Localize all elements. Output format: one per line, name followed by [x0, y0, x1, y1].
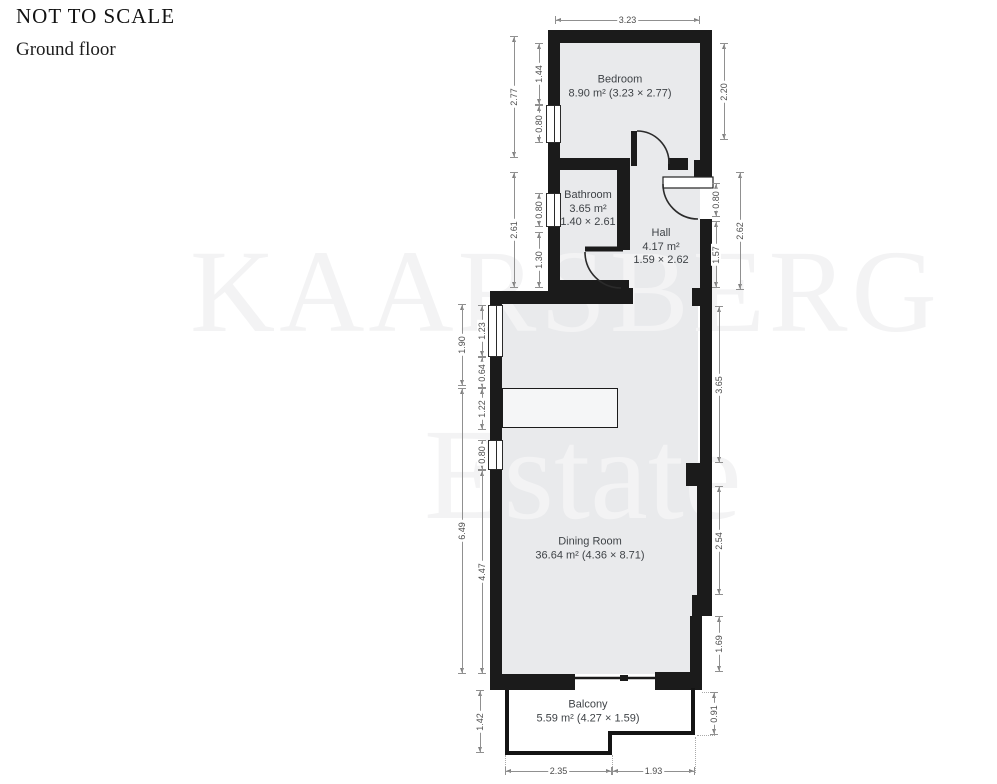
- balcony-wall: [608, 731, 695, 735]
- dimension-label: 3.65: [714, 374, 724, 396]
- dimension: 2.20: [719, 43, 729, 140]
- dimension: 1.22: [477, 388, 487, 430]
- dimension-label: 2.62: [735, 220, 745, 242]
- dimension-label: 1.44: [534, 63, 544, 85]
- room-label-line: 3.65 m²: [560, 202, 615, 216]
- balcony-wall: [505, 690, 509, 755]
- wall: [692, 595, 712, 616]
- room-label-line: 1.59 × 2.62: [633, 254, 688, 268]
- dimension-label: 2.20: [719, 81, 729, 103]
- dimension: 1.44: [534, 43, 544, 105]
- dimension: 0.64: [477, 357, 487, 388]
- dimension: 1.93: [612, 766, 695, 776]
- extension-line: [695, 737, 696, 773]
- window: [546, 105, 561, 143]
- dimension: 0.80: [534, 193, 544, 227]
- balcony-wall: [691, 688, 695, 735]
- wall: [692, 288, 712, 306]
- wall: [490, 674, 575, 690]
- window: [488, 305, 503, 357]
- dimension: 3.65: [714, 306, 724, 463]
- dimension-label: 1.93: [643, 766, 665, 776]
- dimension-label: 2.61: [509, 219, 519, 241]
- room-label-line: 8.90 m² (3.23 × 2.77): [568, 87, 671, 101]
- dimension: 6.49: [457, 388, 467, 674]
- dimension: 0.80: [534, 105, 544, 143]
- wall: [690, 616, 702, 674]
- wall: [490, 291, 633, 304]
- dimension-label: 0.64: [477, 362, 487, 384]
- dimension: 1.57: [711, 221, 721, 288]
- dimension-label: 1.22: [477, 398, 487, 420]
- balcony-label: Balcony5.59 m² (4.27 × 1.59): [536, 699, 639, 726]
- dimension-label: 0.80: [477, 444, 487, 466]
- dimension: 0.80: [711, 183, 721, 217]
- dimension: 1.30: [534, 232, 544, 288]
- room-label-line: 4.17 m²: [633, 240, 688, 254]
- dimension-label: 1.57: [711, 244, 721, 266]
- dimension-label: 3.23: [617, 15, 639, 25]
- dimension: 1.90: [457, 304, 467, 386]
- dimension-label: 1.69: [714, 633, 724, 655]
- dimension: 4.47: [477, 470, 487, 674]
- dimension: 0.80: [477, 440, 487, 470]
- dimension-label: 0.91: [709, 703, 719, 725]
- wall: [617, 158, 630, 250]
- bedroom-label: Bedroom8.90 m² (3.23 × 2.77): [568, 74, 671, 101]
- dimension-label: 1.30: [534, 249, 544, 271]
- dimension: 2.61: [509, 172, 519, 288]
- dimension: 0.91: [709, 692, 719, 735]
- wall: [700, 41, 712, 160]
- wall: [490, 291, 502, 305]
- wall: [548, 30, 712, 43]
- dimension-label: 2.35: [548, 766, 570, 776]
- dimension-label: 0.80: [534, 113, 544, 135]
- bathroom-label: Bathroom3.65 m²1.40 × 2.61: [560, 189, 615, 230]
- wall: [697, 486, 712, 595]
- dimension: 1.23: [477, 305, 487, 357]
- dimension: 3.23: [555, 15, 700, 25]
- room-label-line: 36.64 m² (4.36 × 8.71): [535, 549, 644, 563]
- floor-area: [502, 295, 698, 674]
- wall: [490, 357, 502, 440]
- floor-name-label: Ground floor: [16, 39, 116, 61]
- room-label-line: 1.40 × 2.61: [560, 216, 615, 230]
- wall: [700, 306, 712, 463]
- dimension: 2.54: [714, 486, 724, 595]
- extension-line: [697, 735, 715, 736]
- dimension-label: 0.80: [534, 199, 544, 221]
- wall: [668, 158, 688, 170]
- window: [488, 440, 503, 470]
- dimension-label: 1.90: [457, 334, 467, 356]
- not-to-scale-label: NOT TO SCALE: [16, 4, 175, 29]
- dimension-label: 1.42: [475, 711, 485, 733]
- dimension: 2.77: [509, 36, 519, 158]
- dimension: 2.62: [735, 172, 745, 290]
- wall: [686, 463, 712, 486]
- room-label-line: 5.59 m² (4.27 × 1.59): [536, 712, 639, 726]
- dimension: 2.35: [505, 766, 612, 776]
- window: [546, 193, 561, 227]
- dimension-label: 4.47: [477, 561, 487, 583]
- dimension: 1.69: [714, 616, 724, 672]
- balcony-wall: [608, 735, 612, 755]
- room-label-line: Balcony: [536, 699, 639, 713]
- balcony-wall: [505, 751, 612, 755]
- dining-room-label: Dining Room36.64 m² (4.36 × 8.71): [535, 536, 644, 563]
- wall: [548, 227, 560, 280]
- wall: [490, 470, 502, 674]
- dimension-label: 0.80: [711, 189, 721, 211]
- wall: [620, 675, 628, 681]
- room-label-line: Dining Room: [535, 536, 644, 550]
- built-in-fixture: [502, 388, 618, 428]
- hall-label: Hall4.17 m²1.59 × 2.62: [633, 227, 688, 268]
- dimension-label: 2.54: [714, 530, 724, 552]
- room-label-line: Bathroom: [560, 189, 615, 203]
- dimension-label: 6.49: [457, 520, 467, 542]
- dimension-label: 1.23: [477, 320, 487, 342]
- room-label-line: Hall: [633, 227, 688, 241]
- dimension: 1.42: [475, 690, 485, 753]
- wall: [548, 41, 560, 107]
- floor-plan-page: NOT TO SCALE Ground floor KAARSBERG Esta…: [0, 0, 997, 784]
- floor-plan: 2.771.440.802.610.801.301.901.230.641.22…: [0, 0, 997, 784]
- wall: [694, 160, 712, 186]
- room-label-line: Bedroom: [568, 74, 671, 88]
- dimension-label: 2.77: [509, 86, 519, 108]
